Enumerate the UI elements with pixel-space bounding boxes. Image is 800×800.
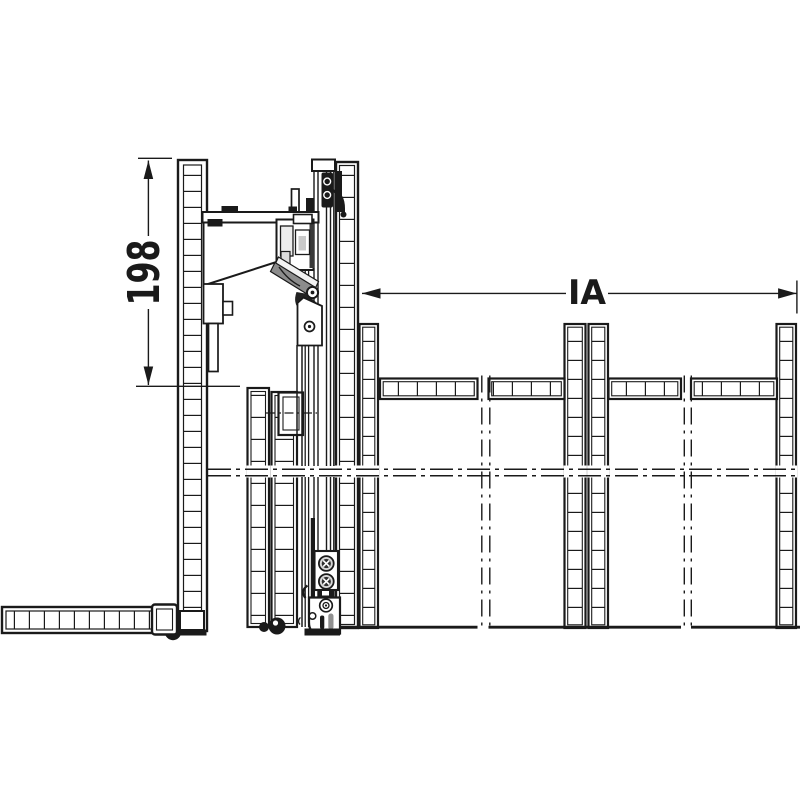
shelf-segment <box>691 379 777 400</box>
shelf-segment <box>609 379 682 400</box>
arrow-left-icon <box>362 288 381 298</box>
shelf-segment <box>380 379 478 400</box>
joint-line <box>684 376 691 628</box>
bracket-rod <box>209 324 219 372</box>
folded-door-panels <box>248 388 304 635</box>
screw <box>319 574 334 589</box>
bottom-roller <box>269 618 286 635</box>
panel-bottom-cap <box>180 611 204 630</box>
top-fitting-mechanism <box>203 206 323 372</box>
inner-width-dimension-label: IA <box>568 273 607 313</box>
open-door-panel <box>2 605 207 641</box>
height-dimension-label: 198 <box>119 240 170 306</box>
rail-top-cap <box>312 160 335 172</box>
technical-drawing: 198 IA <box>0 0 800 800</box>
screw <box>319 556 334 571</box>
bottom-roller <box>259 622 269 632</box>
arrow-down-icon <box>144 367 154 386</box>
dimension-inner-width-ia: IA <box>362 273 797 314</box>
arrow-right-icon <box>778 288 797 298</box>
joint-line <box>482 376 490 628</box>
bracket-lower-box <box>204 284 224 324</box>
technical-drawing-page: 198 IA <box>0 0 800 800</box>
door-panel-front <box>336 162 358 628</box>
fitting-bracket <box>204 223 279 286</box>
shelf-segment <box>489 379 565 400</box>
arrow-up-icon <box>144 161 154 180</box>
